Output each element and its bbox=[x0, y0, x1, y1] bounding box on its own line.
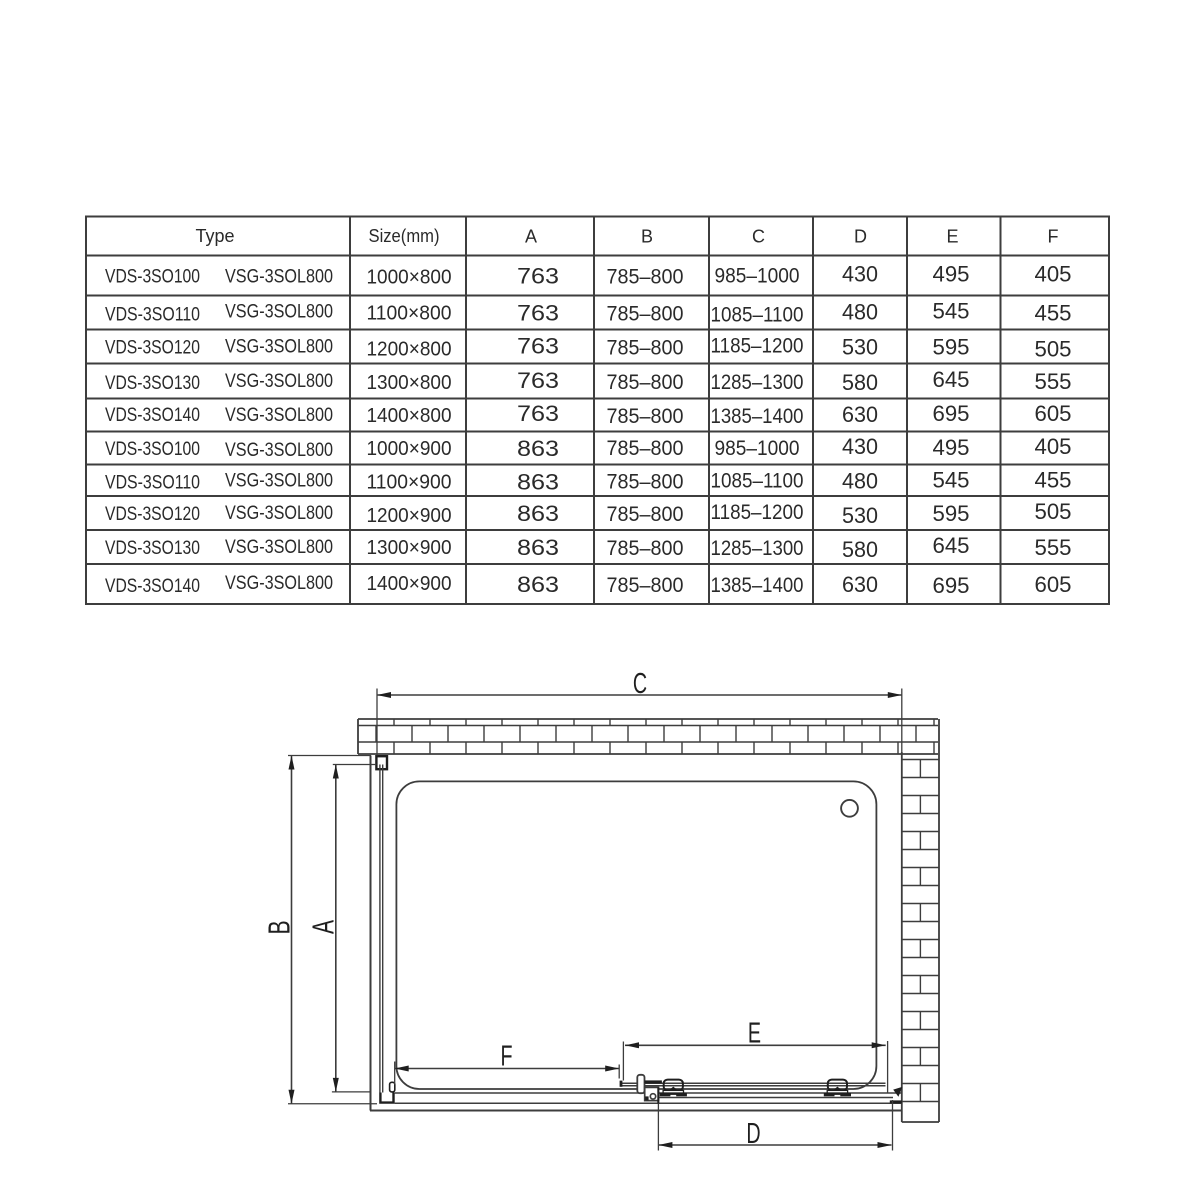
svg-text:VDS-3SO140: VDS-3SO140 bbox=[105, 405, 200, 426]
svg-text:1385–1400: 1385–1400 bbox=[711, 574, 804, 597]
svg-text:C: C bbox=[752, 227, 765, 247]
svg-text:F: F bbox=[500, 1041, 512, 1073]
svg-text:VSG-3SOL800: VSG-3SOL800 bbox=[225, 405, 333, 426]
svg-text:495: 495 bbox=[933, 262, 970, 287]
svg-text:1300×800: 1300×800 bbox=[367, 371, 452, 394]
svg-text:580: 580 bbox=[842, 537, 878, 562]
svg-text:1000×900: 1000×900 bbox=[367, 437, 452, 460]
svg-text:455: 455 bbox=[1035, 467, 1072, 492]
svg-text:1400×900: 1400×900 bbox=[367, 572, 452, 595]
svg-text:1000×800: 1000×800 bbox=[367, 266, 452, 289]
svg-text:530: 530 bbox=[842, 335, 878, 360]
svg-text:1200×900: 1200×900 bbox=[367, 504, 452, 527]
svg-text:785–800: 785–800 bbox=[607, 437, 684, 460]
svg-text:VDS-3SO130: VDS-3SO130 bbox=[105, 373, 200, 394]
svg-text:1085–1100: 1085–1100 bbox=[711, 469, 804, 492]
svg-text:A: A bbox=[525, 227, 537, 247]
svg-text:VSG-3SOL800: VSG-3SOL800 bbox=[225, 470, 333, 491]
svg-text:A: A bbox=[305, 920, 340, 934]
svg-text:F: F bbox=[1048, 227, 1059, 247]
svg-text:763: 763 bbox=[517, 264, 559, 289]
svg-text:VSG-3SOL800: VSG-3SOL800 bbox=[225, 302, 333, 323]
svg-text:863: 863 bbox=[517, 436, 559, 461]
svg-text:505: 505 bbox=[1035, 499, 1072, 524]
svg-text:D: D bbox=[746, 1119, 760, 1151]
svg-text:Type: Type bbox=[195, 226, 234, 246]
svg-text:D: D bbox=[854, 227, 867, 247]
svg-text:555: 555 bbox=[1035, 535, 1072, 560]
svg-text:545: 545 bbox=[933, 299, 970, 324]
svg-text:763: 763 bbox=[517, 401, 559, 426]
svg-text:VSG-3SOL800: VSG-3SOL800 bbox=[225, 267, 333, 288]
svg-text:Size(mm): Size(mm) bbox=[369, 226, 440, 246]
svg-text:430: 430 bbox=[842, 434, 878, 459]
svg-text:863: 863 bbox=[517, 535, 559, 560]
svg-text:430: 430 bbox=[842, 262, 878, 287]
svg-text:455: 455 bbox=[1035, 301, 1072, 326]
svg-text:785–800: 785–800 bbox=[607, 503, 684, 526]
svg-text:645: 645 bbox=[933, 367, 970, 392]
svg-text:605: 605 bbox=[1035, 401, 1072, 426]
svg-text:763: 763 bbox=[517, 368, 559, 393]
svg-text:785–800: 785–800 bbox=[607, 470, 684, 493]
svg-text:1100×800: 1100×800 bbox=[367, 302, 452, 325]
svg-text:1285–1300: 1285–1300 bbox=[711, 371, 804, 394]
svg-text:545: 545 bbox=[933, 467, 970, 492]
svg-text:VDS-3SO120: VDS-3SO120 bbox=[105, 504, 200, 525]
svg-text:VSG-3SOL800: VSG-3SOL800 bbox=[225, 503, 333, 524]
svg-text:VDS-3SO120: VDS-3SO120 bbox=[105, 338, 200, 359]
svg-text:VDS-3SO110: VDS-3SO110 bbox=[105, 305, 200, 326]
svg-text:785–800: 785–800 bbox=[607, 337, 684, 360]
svg-text:1085–1100: 1085–1100 bbox=[711, 304, 804, 327]
svg-text:863: 863 bbox=[517, 572, 559, 597]
svg-text:763: 763 bbox=[517, 334, 559, 359]
svg-text:1185–1200: 1185–1200 bbox=[711, 501, 804, 524]
svg-text:785–800: 785–800 bbox=[607, 266, 684, 289]
svg-text:985–1000: 985–1000 bbox=[715, 265, 800, 288]
svg-text:405: 405 bbox=[1035, 262, 1072, 287]
svg-text:1100×900: 1100×900 bbox=[367, 470, 452, 493]
svg-text:595: 595 bbox=[933, 501, 970, 526]
svg-text:630: 630 bbox=[842, 402, 878, 427]
svg-text:VDS-3SO110: VDS-3SO110 bbox=[105, 472, 200, 493]
svg-text:763: 763 bbox=[517, 301, 559, 326]
svg-text:595: 595 bbox=[933, 335, 970, 360]
svg-text:1285–1300: 1285–1300 bbox=[711, 537, 804, 560]
svg-text:VDS-3SO100: VDS-3SO100 bbox=[105, 267, 200, 288]
svg-text:VDS-3SO140: VDS-3SO140 bbox=[105, 576, 200, 597]
svg-text:785–800: 785–800 bbox=[607, 371, 684, 394]
svg-text:1300×900: 1300×900 bbox=[367, 536, 452, 559]
svg-text:VSG-3SOL800: VSG-3SOL800 bbox=[225, 371, 333, 392]
svg-text:785–800: 785–800 bbox=[607, 303, 684, 326]
svg-text:405: 405 bbox=[1035, 434, 1072, 459]
svg-text:VSG-3SOL800: VSG-3SOL800 bbox=[225, 573, 333, 594]
svg-text:555: 555 bbox=[1035, 369, 1072, 394]
svg-text:863: 863 bbox=[517, 469, 559, 494]
svg-text:505: 505 bbox=[1035, 337, 1072, 362]
svg-text:580: 580 bbox=[842, 370, 878, 395]
svg-text:B: B bbox=[261, 920, 296, 934]
svg-text:695: 695 bbox=[933, 401, 970, 426]
svg-text:985–1000: 985–1000 bbox=[715, 437, 800, 460]
svg-text:863: 863 bbox=[517, 501, 559, 526]
svg-text:480: 480 bbox=[842, 300, 878, 325]
svg-text:785–800: 785–800 bbox=[607, 537, 684, 560]
svg-text:1400×800: 1400×800 bbox=[367, 404, 452, 427]
svg-text:1200×800: 1200×800 bbox=[367, 338, 452, 361]
svg-text:VSG-3SOL800: VSG-3SOL800 bbox=[225, 337, 333, 358]
svg-text:B: B bbox=[641, 227, 653, 247]
svg-text:VDS-3SO130: VDS-3SO130 bbox=[105, 538, 200, 559]
svg-text:VDS-3SO100: VDS-3SO100 bbox=[105, 439, 200, 460]
svg-text:VSG-3SOL800: VSG-3SOL800 bbox=[225, 537, 333, 558]
svg-text:695: 695 bbox=[933, 573, 970, 598]
svg-text:495: 495 bbox=[933, 435, 970, 460]
svg-text:785–800: 785–800 bbox=[607, 405, 684, 428]
svg-text:1385–1400: 1385–1400 bbox=[711, 405, 804, 428]
svg-text:630: 630 bbox=[842, 572, 878, 597]
svg-text:480: 480 bbox=[842, 468, 878, 493]
svg-text:E: E bbox=[946, 227, 958, 247]
svg-text:530: 530 bbox=[842, 503, 878, 528]
svg-text:VSG-3SOL800: VSG-3SOL800 bbox=[225, 440, 333, 461]
svg-text:1185–1200: 1185–1200 bbox=[711, 335, 804, 358]
svg-text:645: 645 bbox=[933, 533, 970, 558]
svg-text:C: C bbox=[633, 668, 647, 700]
svg-text:785–800: 785–800 bbox=[607, 574, 684, 597]
svg-text:605: 605 bbox=[1035, 572, 1072, 597]
svg-text:E: E bbox=[748, 1018, 761, 1050]
